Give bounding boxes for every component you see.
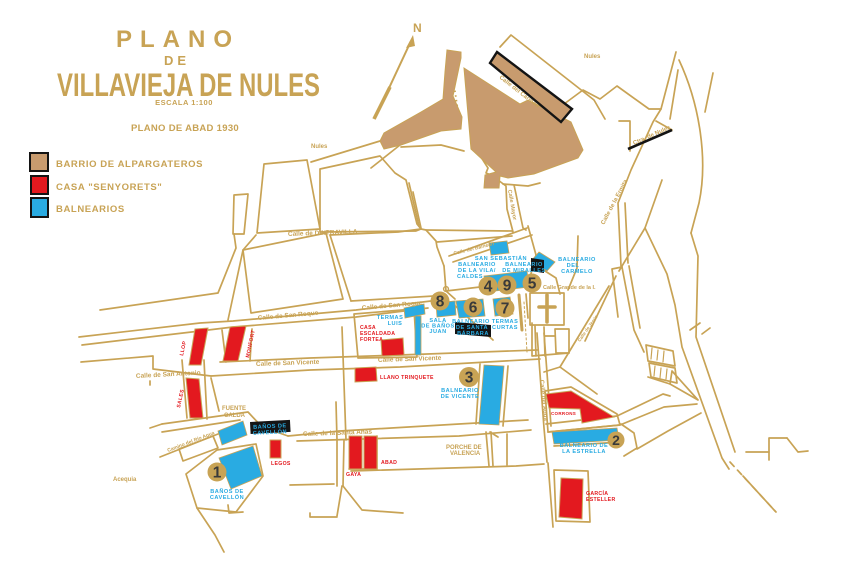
- svg-text:CASA "SENYORETS": CASA "SENYORETS": [56, 182, 162, 193]
- svg-text:1: 1: [213, 465, 222, 482]
- svg-text:8: 8: [436, 294, 445, 311]
- svg-text:LLANO TRINQUETE: LLANO TRINQUETE: [380, 375, 434, 381]
- svg-text:PLANO DE ABAD 1930: PLANO DE ABAD 1930: [131, 123, 239, 134]
- svg-text:GAYA: GAYA: [346, 472, 361, 478]
- svg-text:BAÑOS DE: BAÑOS DE: [210, 488, 244, 495]
- svg-text:6: 6: [469, 300, 478, 317]
- svg-text:CALDES: CALDES: [457, 274, 483, 280]
- svg-text:GARCÍA: GARCÍA: [586, 489, 608, 497]
- svg-text:BÁRBARA: BÁRBARA: [457, 330, 489, 337]
- svg-text:CAVELLÓN: CAVELLÓN: [210, 493, 244, 501]
- svg-text:3: 3: [465, 370, 474, 387]
- svg-text:ESTELLER: ESTELLER: [586, 497, 616, 503]
- svg-text:JUAN: JUAN: [429, 329, 446, 335]
- svg-text:LA ESTRELLA: LA ESTRELLA: [562, 449, 606, 455]
- svg-text:7: 7: [501, 301, 510, 318]
- svg-text:ESCALA 1:100: ESCALA 1:100: [155, 98, 213, 107]
- svg-text:N: N: [413, 21, 422, 35]
- svg-text:LUIS: LUIS: [388, 321, 403, 327]
- svg-text:4: 4: [484, 279, 493, 296]
- svg-text:Nules: Nules: [311, 144, 328, 150]
- svg-text:DE VICENTE: DE VICENTE: [441, 394, 480, 400]
- svg-text:BARRIO DE ALPARGATEROS: BARRIO DE ALPARGATEROS: [56, 159, 203, 170]
- svg-text:2: 2: [612, 432, 620, 448]
- svg-text:CURTAS: CURTAS: [492, 325, 518, 331]
- svg-text:VALENCIA: VALENCIA: [450, 451, 481, 457]
- svg-text:CORRONS: CORRONS: [551, 411, 576, 416]
- svg-text:DE: DE: [164, 53, 190, 68]
- svg-text:9: 9: [503, 278, 512, 295]
- svg-text:5: 5: [528, 276, 537, 293]
- svg-text:Calle Grande de la I.: Calle Grande de la I.: [543, 285, 596, 291]
- svg-text:CALDA: CALDA: [224, 413, 246, 419]
- svg-text:BALNEARIOS: BALNEARIOS: [56, 204, 125, 215]
- svg-text:FUENTE: FUENTE: [222, 406, 246, 412]
- svg-text:ABAD: ABAD: [381, 460, 397, 466]
- svg-text:PLANO: PLANO: [116, 26, 240, 53]
- svg-text:CARMELO: CARMELO: [561, 269, 593, 275]
- svg-text:FORTEA: FORTEA: [360, 337, 383, 343]
- svg-text:DE MIRALLES: DE MIRALLES: [502, 268, 545, 274]
- svg-text:Acequia: Acequia: [113, 477, 137, 483]
- svg-text:SAN SEBASTIÁN: SAN SEBASTIÁN: [475, 255, 527, 262]
- svg-text:LEGOS: LEGOS: [271, 461, 291, 467]
- svg-text:Nules: Nules: [584, 54, 601, 60]
